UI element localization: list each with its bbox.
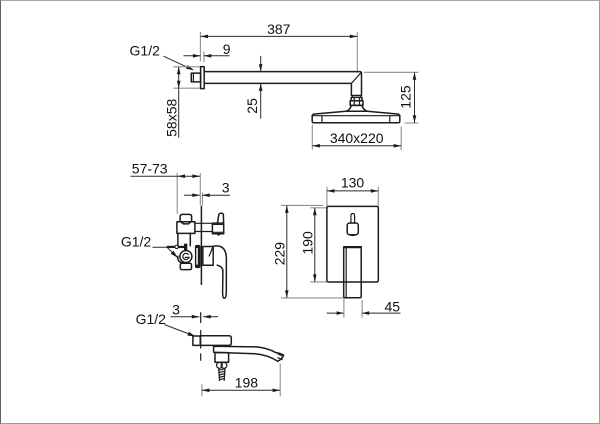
svg-text:130: 130: [341, 175, 365, 191]
svg-text:3: 3: [172, 302, 180, 318]
svg-text:198: 198: [235, 375, 259, 391]
svg-text:25: 25: [244, 98, 260, 114]
svg-text:190: 190: [300, 231, 316, 255]
svg-text:45: 45: [385, 299, 401, 315]
svg-text:9: 9: [223, 41, 231, 57]
svg-text:387: 387: [267, 21, 291, 37]
svg-text:125: 125: [398, 85, 414, 109]
svg-text:340x220: 340x220: [330, 130, 384, 146]
svg-text:57-73: 57-73: [132, 161, 168, 177]
svg-text:G1/2: G1/2: [136, 311, 167, 327]
svg-text:229: 229: [272, 242, 288, 266]
svg-text:G1/2: G1/2: [121, 233, 152, 249]
svg-text:3: 3: [222, 179, 230, 195]
svg-text:58x58: 58x58: [164, 99, 180, 137]
svg-text:G1/2: G1/2: [130, 42, 161, 58]
